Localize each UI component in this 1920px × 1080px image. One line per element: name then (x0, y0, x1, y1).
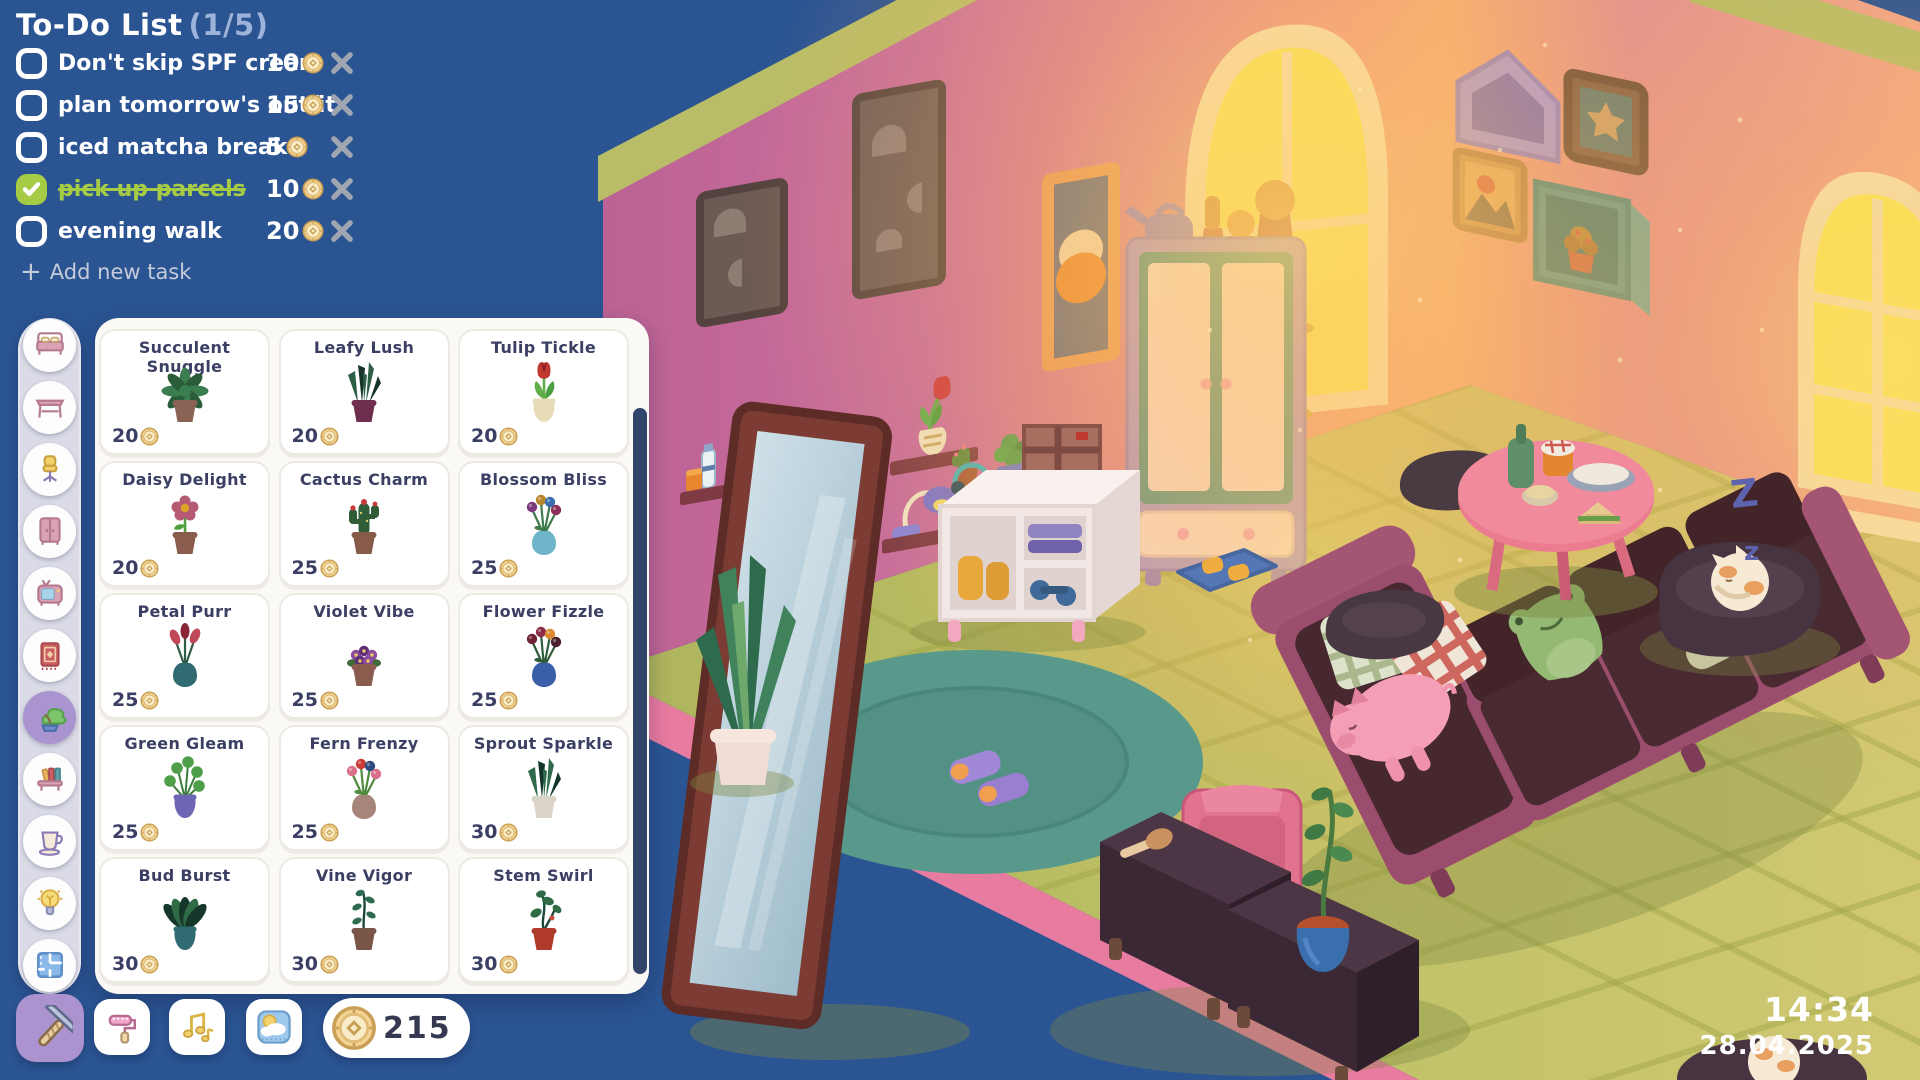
sidebar-category-tv[interactable] (23, 567, 76, 620)
todo-task-row: pick up parcels10 (16, 168, 396, 210)
weather-icon (254, 1007, 294, 1047)
item-price: 25 (112, 689, 159, 711)
task-checkbox[interactable] (16, 216, 47, 247)
item-price: 20 (292, 425, 339, 447)
task-checkbox[interactable] (16, 90, 47, 121)
game-screen: Z z (0, 0, 1920, 1080)
coin-icon (499, 559, 518, 578)
item-name: Stem Swirl (460, 866, 627, 885)
sidebar-category-rooms[interactable] (23, 939, 76, 992)
coin-icon (320, 823, 339, 842)
item-name: Blossom Bliss (460, 470, 627, 489)
shop-item-card[interactable]: Bud Burst30 (99, 857, 270, 983)
shop-panel: Succulent Snuggle20 Leafy Lush20 Tulip T… (95, 318, 649, 994)
shop-item-card[interactable]: Tulip Tickle20 (458, 329, 629, 455)
paint-icon (102, 1007, 142, 1047)
task-delete-button[interactable] (328, 133, 356, 161)
clock-time: 14:34 (1700, 990, 1874, 1029)
paint-mode-button[interactable] (94, 999, 150, 1055)
plant-art (331, 885, 397, 953)
todo-task-row: plan tomorrow's outfit15 (16, 84, 396, 126)
coin-icon (320, 559, 339, 578)
shop-item-card[interactable]: Cactus Charm25 (279, 461, 450, 587)
todo-title: To-Do List(1/5) (16, 8, 396, 42)
bed-icon (33, 328, 67, 362)
item-name: Bud Burst (101, 866, 268, 885)
sidebar-category-rug[interactable] (23, 629, 76, 682)
shop-item-card[interactable]: Fern Frenzy25 (279, 725, 450, 851)
weather-mode-button[interactable] (246, 999, 302, 1055)
item-price: 30 (471, 953, 518, 975)
plant-art (152, 753, 218, 821)
coin-icon (499, 427, 518, 446)
item-price: 30 (292, 953, 339, 975)
plant-art (511, 357, 577, 425)
item-name: Vine Vigor (281, 866, 448, 885)
table-icon (33, 390, 67, 424)
item-name: Petal Purr (101, 602, 268, 621)
coin-icon (331, 1005, 377, 1051)
shop-item-card[interactable]: Flower Fizzle25 (458, 593, 629, 719)
sidebar-category-table[interactable] (23, 381, 76, 434)
sidebar-category-lamp[interactable] (23, 877, 76, 930)
shop-item-card[interactable]: Green Gleam25 (99, 725, 270, 851)
shop-item-card[interactable]: Vine Vigor30 (279, 857, 450, 983)
coin-icon (302, 94, 324, 116)
plant-art (152, 621, 218, 689)
bookshelf-icon (33, 762, 67, 796)
plus-icon: + (20, 262, 42, 282)
item-price: 20 (112, 425, 159, 447)
item-price: 20 (112, 557, 159, 579)
item-price: 30 (471, 821, 518, 843)
chair-icon (33, 452, 67, 486)
item-name: Tulip Tickle (460, 338, 627, 357)
item-name: Sprout Sparkle (460, 734, 627, 753)
todo-task-row: Don't skip SPF cream10 (16, 42, 396, 84)
sidebar-category-plants[interactable] (23, 691, 76, 744)
item-name: Daisy Delight (101, 470, 268, 489)
coin-counter: 215 (323, 998, 470, 1058)
rooms-icon (33, 948, 67, 982)
cup-icon (33, 824, 67, 858)
shop-scrollbar[interactable] (633, 408, 647, 974)
add-task-button[interactable]: + Add new task (20, 260, 396, 284)
sidebar-category-bookshelf[interactable] (23, 753, 76, 806)
coin-icon (302, 220, 324, 242)
task-reward: 20 (266, 217, 324, 245)
item-price: 25 (471, 557, 518, 579)
coin-icon (499, 823, 518, 842)
plant-art (331, 357, 397, 425)
plant-art (152, 885, 218, 953)
coin-icon (140, 559, 159, 578)
coin-icon (302, 52, 324, 74)
shop-item-card[interactable]: Stem Swirl30 (458, 857, 629, 983)
coin-icon (499, 691, 518, 710)
task-label: evening walk (58, 219, 222, 244)
item-name: Violet Vibe (281, 602, 448, 621)
coin-icon (302, 178, 324, 200)
todo-list: To-Do List(1/5) Don't skip SPF cream10 p… (16, 8, 396, 284)
tv-icon (33, 576, 67, 610)
coin-amount: 215 (383, 1011, 452, 1046)
task-checkbox[interactable] (16, 48, 47, 79)
plants-icon (33, 700, 67, 734)
task-reward: 10 (266, 49, 324, 77)
task-checkbox[interactable] (16, 132, 47, 163)
task-delete-button[interactable] (328, 49, 356, 77)
coin-icon (140, 823, 159, 842)
task-label: iced matcha break (58, 135, 287, 160)
todo-task-row: evening walk20 (16, 210, 396, 252)
shop-item-card[interactable]: Sprout Sparkle30 (458, 725, 629, 851)
coin-icon (320, 691, 339, 710)
plant-art (152, 489, 218, 557)
task-delete-button[interactable] (328, 217, 356, 245)
shop-item-card[interactable]: Succulent Snuggle20 (99, 329, 270, 455)
category-sidebar (18, 318, 81, 994)
item-price: 25 (292, 557, 339, 579)
shop-item-card[interactable]: Daisy Delight20 (99, 461, 270, 587)
sidebar-category-wardrobe[interactable] (23, 505, 76, 558)
plant-art (511, 753, 577, 821)
item-name: Fern Frenzy (281, 734, 448, 753)
coin-icon (140, 955, 159, 974)
coin-icon (140, 427, 159, 446)
coin-icon (286, 136, 308, 158)
build-icon (27, 1005, 73, 1051)
sleep-z-small: z (1744, 537, 1759, 567)
rug-icon (33, 638, 67, 672)
plant-art (331, 621, 397, 689)
coin-icon (140, 691, 159, 710)
sidebar-category-chair[interactable] (23, 443, 76, 496)
item-price: 25 (292, 821, 339, 843)
shop-item-card[interactable]: Leafy Lush20 (279, 329, 450, 455)
clock: 14:34 28.04.2025 (1700, 990, 1874, 1061)
music-mode-button[interactable] (169, 999, 225, 1055)
coin-icon (320, 427, 339, 446)
todo-count: (1/5) (189, 8, 269, 42)
sidebar-category-bed[interactable] (23, 319, 76, 372)
music-icon (177, 1007, 217, 1047)
shop-item-card[interactable]: Violet Vibe25 (279, 593, 450, 719)
item-price: 25 (112, 821, 159, 843)
plant-art (331, 489, 397, 557)
item-price: 25 (292, 689, 339, 711)
plant-art (511, 885, 577, 953)
plant-art (152, 357, 218, 425)
plant-art (331, 753, 397, 821)
item-name: Cactus Charm (281, 470, 448, 489)
item-price: 20 (471, 425, 518, 447)
task-reward: 10 (266, 175, 324, 203)
sleep-z-large: Z (1728, 470, 1760, 517)
coin-icon (331, 1005, 377, 1051)
clock-date: 28.04.2025 (1700, 1031, 1874, 1061)
item-name: Leafy Lush (281, 338, 448, 357)
item-name: Green Gleam (101, 734, 268, 753)
lamp-icon (33, 886, 67, 920)
plant-art (511, 489, 577, 557)
coin-icon (499, 955, 518, 974)
plant-art (511, 621, 577, 689)
task-reward: 15 (266, 91, 324, 119)
add-task-label: Add new task (50, 260, 192, 284)
sidebar-category-cup[interactable] (23, 815, 76, 868)
shop-item-card[interactable]: Blossom Bliss25 (458, 461, 629, 587)
item-name: Flower Fizzle (460, 602, 627, 621)
build-mode-button[interactable] (16, 994, 84, 1062)
task-label: pick up parcels (58, 177, 246, 202)
wardrobe-icon (33, 514, 67, 548)
coin-icon (320, 955, 339, 974)
item-price: 25 (471, 689, 518, 711)
todo-task-row: iced matcha break5 (16, 126, 396, 168)
item-price: 30 (112, 953, 159, 975)
task-delete-button[interactable] (328, 91, 356, 119)
task-delete-button[interactable] (328, 175, 356, 203)
shop-item-card[interactable]: Petal Purr25 (99, 593, 270, 719)
task-checkbox[interactable] (16, 174, 47, 205)
task-reward: 5 (266, 133, 308, 161)
